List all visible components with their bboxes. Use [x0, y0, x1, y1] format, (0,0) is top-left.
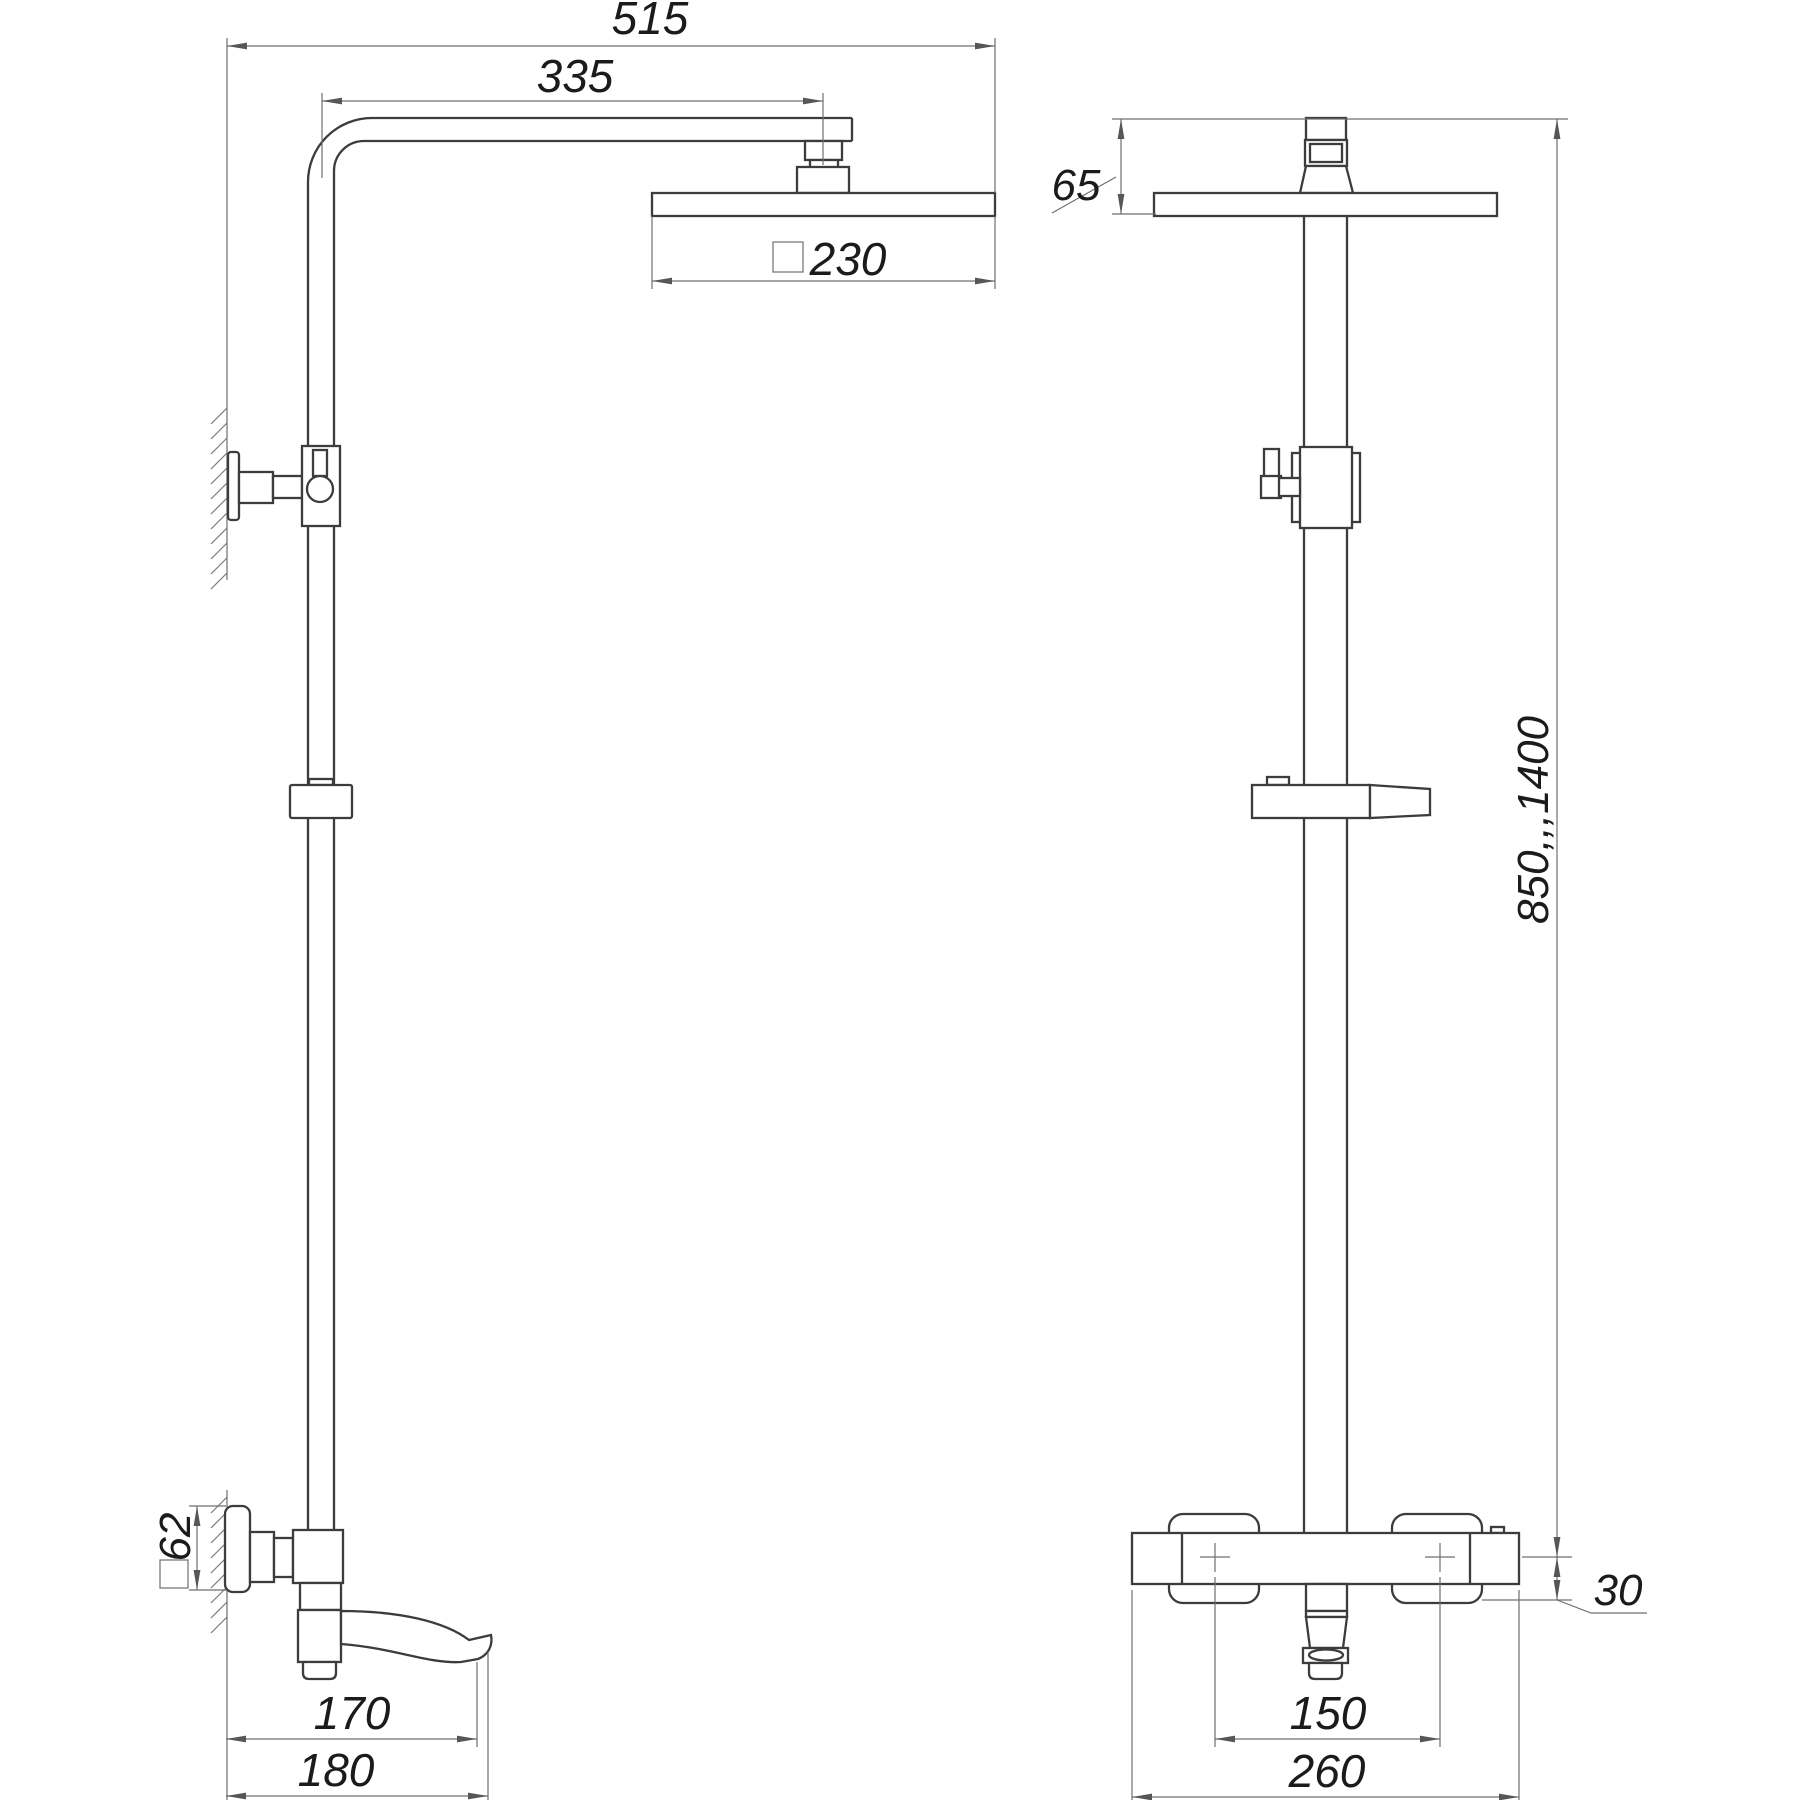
dim-65-text: 65 — [1052, 161, 1101, 210]
dim-230-text: 230 — [809, 233, 887, 285]
dim-30-text: 30 — [1594, 1566, 1643, 1615]
shower-head-front — [1154, 193, 1497, 216]
square-section-symbol-icon — [160, 1560, 188, 1588]
mixer-bar — [1132, 1533, 1519, 1584]
dim-150-text: 150 — [1290, 1687, 1367, 1739]
dim-170-text: 170 — [314, 1687, 391, 1739]
riser-column-front — [1304, 216, 1347, 1533]
technical-drawing: 515 335 230 62 170 — [0, 0, 1800, 1800]
front-view: 65 850,,,1400 30 150 260 — [1052, 118, 1647, 1800]
wall-bracket-side — [228, 446, 340, 526]
top-connector-front — [1300, 118, 1353, 193]
dim-170: 170 — [226, 1662, 477, 1747]
square-section-symbol-icon — [773, 242, 803, 272]
wall-bracket-front — [1261, 447, 1360, 528]
dim-335-text: 335 — [537, 50, 614, 102]
slider-holder-front — [1252, 777, 1430, 818]
riser-column-side — [308, 118, 852, 1532]
dim-850-1400-text: 850,,,1400 — [1509, 715, 1558, 923]
dim-230: 230 — [652, 216, 995, 289]
aerator-side — [303, 1662, 336, 1679]
tub-spout-front — [1303, 1584, 1348, 1679]
slider-holder-side — [290, 779, 352, 818]
dim-260-text: 260 — [1288, 1745, 1366, 1797]
mixer-side — [225, 1506, 491, 1679]
dim-850-1400: 850,,,1400 — [1509, 119, 1572, 1557]
dim-62-text: 62 — [151, 1513, 200, 1562]
dim-515-text: 515 — [612, 0, 689, 44]
dim-180-text: 180 — [298, 1744, 375, 1796]
wall-upper — [211, 38, 227, 589]
tub-spout-side — [341, 1611, 491, 1662]
dim-335: 335 — [322, 50, 823, 178]
side-view: 515 335 230 62 170 — [151, 0, 995, 1800]
shower-head-side — [652, 193, 995, 216]
drawing-canvas: 515 335 230 62 170 — [0, 0, 1800, 1800]
dim-62: 62 — [151, 1506, 226, 1590]
